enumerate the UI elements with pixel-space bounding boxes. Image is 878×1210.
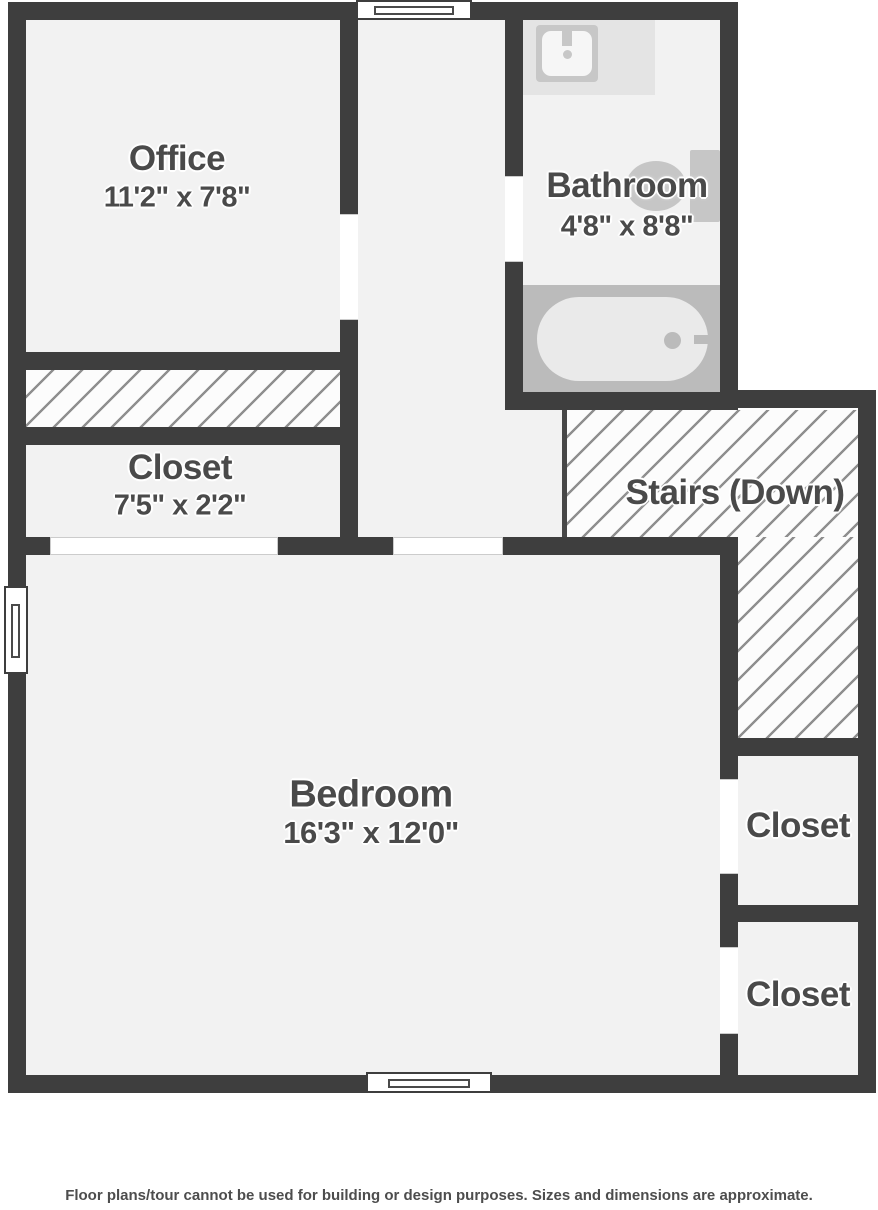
wall-bathroom-right: [720, 2, 738, 408]
wall-stairs-top: [720, 390, 876, 408]
wall-stairs-bottom: [720, 738, 858, 756]
hall-closet-door-opening: [50, 537, 278, 555]
window-glass: [374, 6, 454, 15]
sink-faucet: [562, 25, 572, 46]
office-door-opening: [340, 214, 358, 320]
bathtub-faucet: [694, 335, 710, 344]
wall-bedroom-top-b: [278, 537, 393, 555]
bathroom-door-opening: [505, 176, 523, 262]
disclaimer-text: Floor plans/tour cannot be used for buil…: [0, 1187, 878, 1204]
bedroom-door-opening: [393, 537, 503, 555]
wall-bedroom-top-a: [8, 537, 50, 555]
sink-drain: [563, 50, 572, 59]
wall-stairs-left-edge: [562, 410, 567, 537]
upper-closet-door-opening: [720, 779, 738, 874]
window-top: [356, 0, 472, 20]
window-glass: [388, 1079, 470, 1088]
bathroom-label: Bathroom: [546, 166, 707, 206]
window-bottom: [366, 1072, 492, 1093]
wall-bathroom-bottom: [505, 392, 738, 410]
hall-closet-dimensions: 7'5" x 2'2": [114, 490, 247, 523]
bathroom-dimensions: 4'8" x 8'8": [561, 211, 694, 244]
hall-closet-label: Closet: [128, 448, 232, 488]
upper-closet-label: Closet: [746, 806, 850, 846]
wall-closet-divider: [720, 905, 858, 922]
stairs-label: Stairs (Down): [625, 473, 844, 513]
lower-closet-door-opening: [720, 947, 738, 1034]
window-glass: [11, 604, 20, 658]
wall-outer-right: [858, 390, 876, 1093]
bedroom-dimensions: 16'3" x 12'0": [283, 815, 459, 851]
bathtub-icon: [537, 297, 708, 381]
bathtub-drain: [664, 332, 681, 349]
stairs-hatch-lower: [738, 537, 858, 738]
wall-bedroom-top-c: [503, 537, 738, 555]
dead-space-hatch: [26, 370, 340, 427]
wall-hatch-bottom: [8, 427, 358, 445]
lower-closet-label: Closet: [746, 975, 850, 1015]
office-label: Office: [129, 139, 225, 179]
bedroom-label: Bedroom: [289, 774, 452, 817]
stairs-landing-floor: [505, 410, 567, 537]
wall-office-bottom: [8, 352, 358, 370]
office-dimensions: 11'2" x 7'8": [104, 182, 251, 215]
hallway-floor: [358, 20, 505, 537]
floor-plan: Office 11'2" x 7'8" Bathroom 4'8" x 8'8"…: [0, 0, 878, 1210]
window-left: [4, 586, 28, 674]
